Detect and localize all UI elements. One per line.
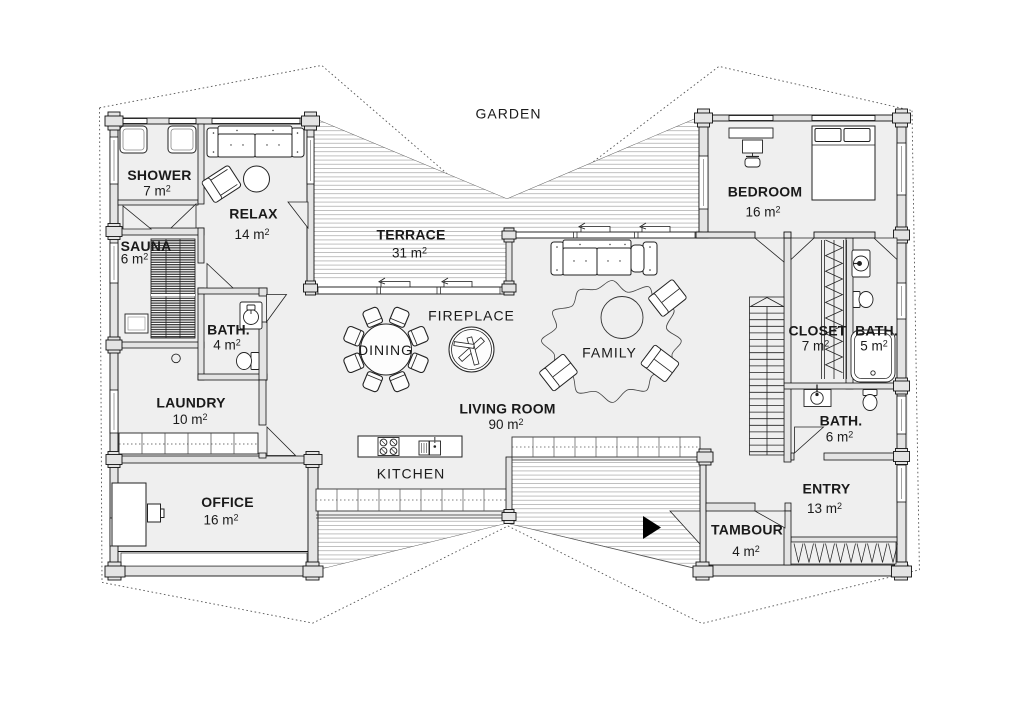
- svg-text:16 m2: 16 m2: [203, 513, 238, 528]
- svg-text:BATH.: BATH.: [855, 323, 898, 339]
- svg-text:CLOSET: CLOSET: [789, 323, 847, 339]
- svg-text:LIVING ROOM: LIVING ROOM: [459, 401, 555, 417]
- svg-text:KITCHEN: KITCHEN: [377, 466, 445, 482]
- svg-text:31 m2: 31 m2: [392, 246, 427, 261]
- svg-text:OFFICE: OFFICE: [201, 494, 254, 510]
- svg-text:10 m2: 10 m2: [172, 412, 207, 427]
- svg-text:TAMBOUR: TAMBOUR: [711, 522, 783, 538]
- svg-text:TERRACE: TERRACE: [376, 227, 445, 243]
- svg-text:LAUNDRY: LAUNDRY: [156, 395, 226, 411]
- svg-text:FAMILY: FAMILY: [582, 345, 637, 361]
- svg-text:16 m2: 16 m2: [745, 205, 780, 220]
- svg-text:90 m2: 90 m2: [488, 417, 523, 432]
- svg-text:SHOWER: SHOWER: [127, 167, 191, 183]
- svg-text:ENTRY: ENTRY: [803, 481, 851, 497]
- svg-text:BEDROOM: BEDROOM: [728, 184, 803, 200]
- svg-text:DINING: DINING: [358, 342, 413, 358]
- svg-text:13 m2: 13 m2: [807, 501, 842, 516]
- svg-text:BATH.: BATH.: [207, 322, 250, 338]
- svg-text:14 m2: 14 m2: [234, 227, 269, 242]
- svg-text:RELAX: RELAX: [229, 206, 278, 222]
- svg-text:FIREPLACE: FIREPLACE: [428, 308, 515, 324]
- svg-text:GARDEN: GARDEN: [476, 106, 542, 122]
- svg-text:BATH.: BATH.: [820, 413, 863, 429]
